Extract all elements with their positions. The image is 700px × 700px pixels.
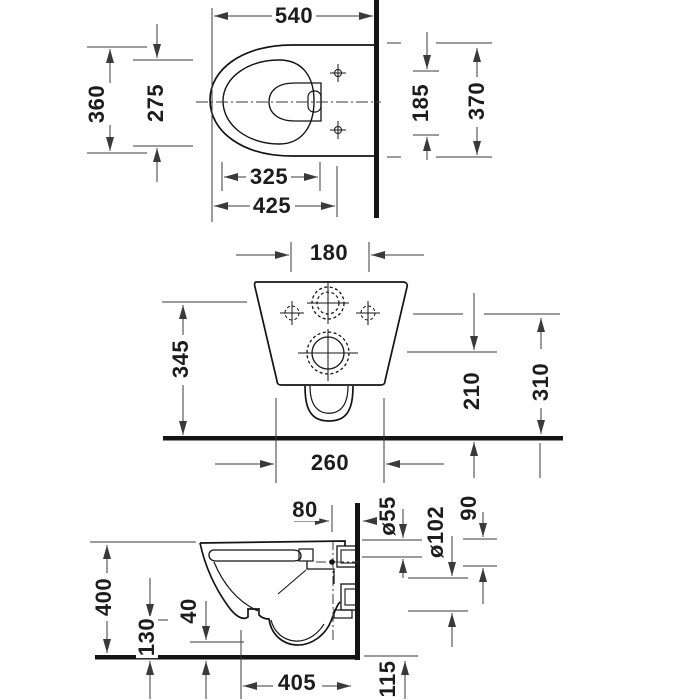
dim-label-130: 130 <box>136 616 158 658</box>
dim-label-325: 325 <box>248 166 290 188</box>
dim-label-40: 40 <box>178 596 200 625</box>
dim-label-540: 540 <box>273 5 315 27</box>
outlet-flange <box>341 584 356 610</box>
dim-label-185: 185 <box>410 82 432 124</box>
seat-profile <box>209 550 301 561</box>
dim-label-80: 80 <box>290 499 319 521</box>
dim-label-345: 345 <box>170 338 192 380</box>
front-view-dimension-lines <box>183 255 541 478</box>
dim-label-310: 310 <box>530 361 552 403</box>
top-view-outline <box>210 45 376 156</box>
dim-label-370: 370 <box>466 80 488 122</box>
wall-line-top <box>374 0 379 218</box>
dim-label-210: 210 <box>461 370 483 412</box>
supply-pipe-inner <box>341 550 356 563</box>
floor-line-front <box>163 436 563 441</box>
supply-connection-circle <box>307 281 349 324</box>
dim-label-260: 260 <box>309 452 351 474</box>
connection-point-marker <box>329 559 335 565</box>
outlet-spout-outer <box>305 386 353 421</box>
dim-label-400: 400 <box>93 576 115 618</box>
seat-top-edge <box>200 541 345 546</box>
wall-line-side <box>355 503 360 660</box>
dim-label-115: 115 <box>377 659 399 700</box>
outlet-spout-inner <box>310 386 348 413</box>
mounting-hole-markers-front <box>280 301 380 325</box>
dim-label-405: 405 <box>276 672 318 694</box>
outlet-flange-inner <box>345 589 356 605</box>
body-outline <box>255 282 408 385</box>
dim-label-180: 180 <box>308 242 350 264</box>
technical-drawing-canvas: 540 360 275 185 370 325 425 180 345 210 … <box>0 0 700 700</box>
side-view-outline <box>200 541 356 645</box>
rear-profile <box>307 561 334 584</box>
front-view-extension-lines <box>162 242 560 483</box>
front-view <box>162 242 563 483</box>
bowl-profile <box>200 543 340 645</box>
internal-channel-line <box>278 570 306 594</box>
mounting-bracket <box>334 610 352 618</box>
dim-label-360: 360 <box>86 83 108 125</box>
outlet-connection-circle <box>298 329 358 381</box>
dim-label-425: 425 <box>251 195 293 217</box>
dim-label-90: 90 <box>458 493 480 522</box>
dim-label-o102: ø102 <box>425 504 447 560</box>
dim-label-275: 275 <box>145 82 167 124</box>
dim-label-o55: ø55 <box>377 494 399 537</box>
supply-pipe-box <box>337 546 356 567</box>
inner-bowl-line <box>214 562 258 611</box>
